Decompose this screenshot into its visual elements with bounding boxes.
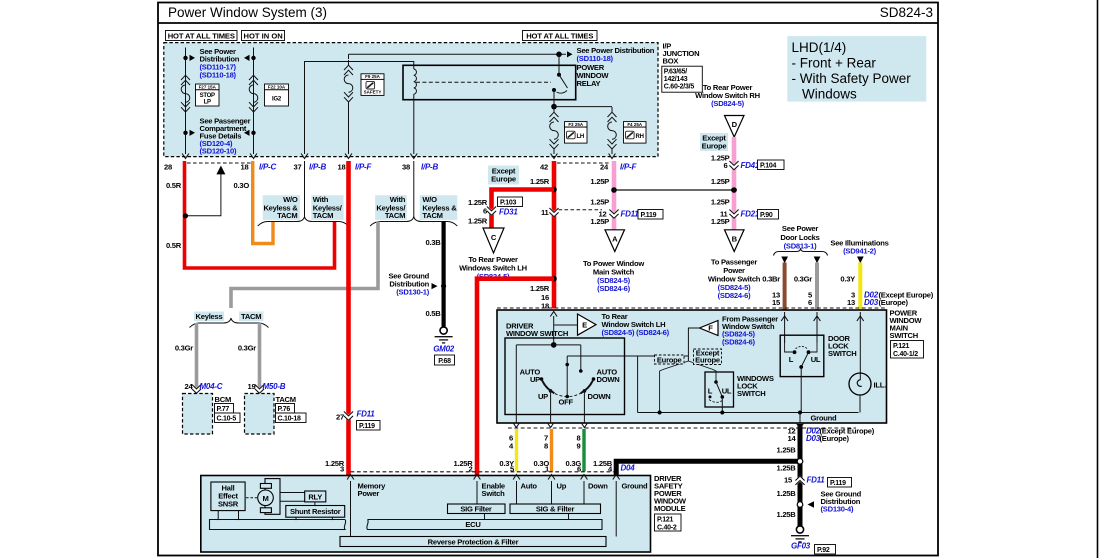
svg-text:P.63/65/: P.63/65/	[664, 69, 687, 76]
svg-text:TACM: TACM	[276, 395, 296, 404]
svg-text:TACM: TACM	[422, 211, 442, 220]
svg-text:(SD110-18): (SD110-18)	[200, 71, 237, 80]
svg-text:Ground: Ground	[811, 414, 838, 423]
svg-text:18: 18	[338, 163, 346, 172]
svg-text:UL: UL	[722, 387, 732, 396]
svg-text:M04-C: M04-C	[200, 382, 223, 391]
svg-text:0.3Gr: 0.3Gr	[175, 344, 193, 353]
svg-text:28: 28	[164, 163, 172, 172]
svg-text:24: 24	[600, 163, 609, 172]
svg-text:F9 25A: F9 25A	[365, 74, 381, 79]
svg-text:Keyless: Keyless	[196, 312, 223, 321]
svg-text:(SD824-6): (SD824-6)	[597, 284, 630, 293]
svg-text:P.68: P.68	[438, 358, 451, 365]
svg-text:I/P-C: I/P-C	[259, 163, 276, 172]
svg-text:Up: Up	[557, 482, 567, 491]
svg-text:WINDOW SWITCH: WINDOW SWITCH	[506, 329, 568, 338]
svg-text:E: E	[582, 321, 587, 330]
svg-text:DOWN: DOWN	[588, 392, 611, 401]
svg-text:(SD824-5) (SD824-6): (SD824-5) (SD824-6)	[602, 328, 670, 337]
svg-text:(SD120-10): (SD120-10)	[200, 147, 237, 156]
svg-text:0.3Y: 0.3Y	[840, 275, 855, 284]
svg-text:UL: UL	[811, 355, 821, 364]
svg-text:TACM: TACM	[277, 211, 297, 220]
svg-text:SIG Filter: SIG Filter	[460, 505, 492, 514]
svg-text:D: D	[732, 120, 738, 129]
svg-text:I/P-B: I/P-B	[309, 163, 326, 172]
svg-text:P.103: P.103	[500, 200, 516, 207]
svg-text:UP: UP	[530, 375, 540, 384]
svg-text:See Power: See Power	[782, 224, 818, 233]
svg-text:GF03: GF03	[791, 542, 811, 551]
svg-text:SD824-3: SD824-3	[880, 5, 933, 20]
svg-text:Reverse Protection & Filter: Reverse Protection & Filter	[428, 538, 519, 547]
svg-text:DOWN: DOWN	[597, 375, 620, 384]
svg-text:6: 6	[483, 207, 487, 216]
svg-text:SWITCH: SWITCH	[890, 331, 918, 340]
svg-text:P.121: P.121	[893, 343, 909, 350]
svg-text:F4 25A: F4 25A	[627, 122, 643, 127]
svg-text:P.92: P.92	[817, 547, 830, 554]
svg-text:LH: LH	[577, 134, 585, 140]
svg-text:RH: RH	[636, 134, 644, 140]
svg-text:0.5R: 0.5R	[166, 241, 182, 250]
svg-text:FD11: FD11	[357, 410, 376, 419]
svg-text:0.3Gr: 0.3Gr	[794, 275, 812, 284]
svg-text:C.60-2/3/5: C.60-2/3/5	[664, 84, 695, 91]
svg-text:Windows: Windows	[802, 87, 857, 102]
svg-text:1.25P: 1.25P	[590, 217, 609, 226]
svg-text:TACM: TACM	[241, 312, 261, 321]
svg-text:FD41: FD41	[741, 161, 760, 170]
svg-text:Power Window System (3): Power Window System (3)	[168, 5, 327, 20]
svg-text:BCM: BCM	[215, 395, 232, 404]
svg-text:(SD130-4): (SD130-4)	[821, 505, 854, 514]
svg-text:24: 24	[185, 382, 194, 391]
svg-text:Switch: Switch	[482, 489, 506, 498]
svg-text:SWITCH: SWITCH	[737, 389, 765, 398]
svg-text:1.25B: 1.25B	[776, 463, 796, 472]
svg-text:(SD824-5): (SD824-5)	[711, 99, 744, 108]
svg-text:9: 9	[577, 442, 581, 451]
svg-text:FD21: FD21	[741, 210, 760, 219]
svg-text:(SD824-6): (SD824-6)	[722, 338, 755, 347]
svg-text:SWITCH: SWITCH	[828, 349, 856, 358]
svg-text:6: 6	[808, 298, 812, 307]
svg-text:STOP: STOP	[200, 93, 215, 99]
svg-text:RLY: RLY	[308, 493, 322, 502]
svg-text:- Front + Rear: - Front + Rear	[792, 56, 877, 71]
svg-text:1.25P: 1.25P	[711, 177, 730, 186]
svg-text:1.25B: 1.25B	[776, 510, 796, 519]
svg-text:1.25P: 1.25P	[590, 198, 609, 207]
svg-text:L: L	[789, 355, 794, 364]
svg-text:D04: D04	[621, 463, 636, 472]
svg-text:18: 18	[541, 302, 549, 311]
svg-text:- With Safety Power: - With Safety Power	[792, 71, 912, 86]
svg-text:0.3B: 0.3B	[425, 238, 441, 247]
svg-text:C.40-2: C.40-2	[657, 525, 677, 532]
svg-text:27: 27	[336, 413, 344, 422]
svg-text:TACM: TACM	[313, 211, 333, 220]
svg-text:I/P-B: I/P-B	[421, 163, 438, 172]
svg-text:LP: LP	[204, 100, 211, 106]
svg-text:BOX: BOX	[663, 57, 679, 66]
svg-text:IG2: IG2	[272, 97, 282, 103]
svg-text:14: 14	[788, 434, 797, 443]
svg-text:P.104: P.104	[760, 163, 776, 170]
svg-text:LHD(1/4): LHD(1/4)	[792, 40, 847, 55]
svg-text:L: L	[708, 387, 713, 396]
svg-text:ECU: ECU	[465, 520, 481, 529]
svg-text:TACM: TACM	[385, 211, 405, 220]
svg-text:RELAY: RELAY	[577, 79, 601, 88]
svg-text:Auto: Auto	[521, 482, 538, 491]
svg-text:P.119: P.119	[641, 212, 657, 219]
svg-text:P.119: P.119	[830, 480, 846, 487]
svg-text:Shunt Resistor: Shunt Resistor	[290, 507, 341, 516]
svg-text:B: B	[732, 235, 738, 244]
svg-text:Europe: Europe	[695, 356, 720, 365]
svg-text:1.25R: 1.25R	[468, 217, 488, 226]
svg-text:3: 3	[340, 464, 344, 473]
svg-text:F3 25A: F3 25A	[568, 122, 584, 127]
svg-text:SNSR: SNSR	[218, 499, 239, 508]
svg-text:(SD941-2): (SD941-2)	[843, 247, 876, 256]
svg-text:HOT AT ALL TIMES: HOT AT ALL TIMES	[526, 31, 593, 40]
svg-text:P.90: P.90	[760, 212, 773, 219]
svg-text:I/P-F: I/P-F	[620, 163, 637, 172]
svg-text:C.10-5: C.10-5	[217, 416, 237, 423]
svg-text:HOT AT ALL TIMES: HOT AT ALL TIMES	[168, 31, 235, 40]
svg-text:HOT IN ON: HOT IN ON	[244, 31, 283, 40]
svg-text:Power: Power	[358, 489, 380, 498]
svg-text:Ground: Ground	[622, 482, 649, 491]
svg-text:(Europe): (Europe)	[879, 298, 909, 307]
svg-text:Europe: Europe	[657, 356, 682, 365]
svg-text:1.25P: 1.25P	[711, 217, 730, 226]
svg-text:SIG & Filter: SIG & Filter	[536, 505, 575, 514]
svg-text:142/143: 142/143	[664, 76, 688, 83]
svg-text:P.77: P.77	[217, 406, 230, 413]
svg-text:C.10-18: C.10-18	[278, 416, 302, 423]
svg-text:(SD824-6): (SD824-6)	[718, 291, 751, 300]
svg-text:UP: UP	[538, 392, 548, 401]
svg-text:19: 19	[248, 382, 256, 391]
svg-text:Down: Down	[588, 482, 608, 491]
svg-text:13: 13	[847, 298, 855, 307]
svg-text:P.119: P.119	[359, 423, 375, 430]
svg-text:F: F	[708, 324, 713, 333]
svg-text:38: 38	[402, 163, 410, 172]
svg-text:1.25R: 1.25R	[530, 177, 550, 186]
svg-text:1.25B: 1.25B	[776, 446, 796, 455]
svg-text:1.25P: 1.25P	[590, 177, 609, 186]
svg-text:15: 15	[784, 476, 793, 485]
svg-text:OFF: OFF	[559, 398, 574, 407]
svg-text:D03: D03	[864, 298, 879, 307]
svg-text:0.5R: 0.5R	[166, 181, 182, 190]
svg-text:18: 18	[241, 163, 249, 172]
svg-text:0.3Br: 0.3Br	[762, 275, 780, 284]
svg-text:Europe: Europe	[702, 142, 727, 151]
svg-text:A: A	[612, 235, 618, 244]
svg-text:P.121: P.121	[657, 517, 673, 524]
svg-text:I/P-F: I/P-F	[355, 163, 372, 172]
svg-text:C.40-1/2: C.40-1/2	[893, 351, 918, 358]
svg-text:1.25P: 1.25P	[711, 198, 730, 207]
svg-text:(SD110-18): (SD110-18)	[577, 54, 614, 63]
svg-text:MODULE: MODULE	[654, 504, 686, 513]
svg-text:0.5B: 0.5B	[425, 309, 441, 318]
svg-text:M50-B: M50-B	[263, 382, 286, 391]
svg-text:FD11: FD11	[807, 476, 826, 485]
svg-text:8: 8	[544, 442, 548, 451]
svg-text:SAFETY: SAFETY	[364, 90, 382, 95]
svg-text:C: C	[491, 233, 497, 242]
svg-text:15: 15	[772, 298, 781, 307]
svg-text:(SD130-1): (SD130-1)	[396, 288, 429, 297]
svg-text:GM02: GM02	[433, 345, 455, 354]
svg-text:1.25R: 1.25R	[530, 284, 550, 293]
svg-text:FD11: FD11	[621, 210, 640, 219]
svg-text:(Europe): (Europe)	[820, 434, 850, 443]
svg-text:FD31: FD31	[499, 208, 518, 217]
svg-text:6: 6	[724, 161, 728, 170]
svg-text:F22 10A: F22 10A	[268, 85, 286, 90]
svg-text:Europe: Europe	[491, 175, 516, 184]
svg-text:ILL.: ILL.	[874, 381, 887, 390]
svg-text:0.3O: 0.3O	[234, 181, 250, 190]
svg-text:F27 15A: F27 15A	[199, 85, 217, 90]
svg-text:0.3Gr: 0.3Gr	[238, 344, 256, 353]
svg-text:42: 42	[540, 163, 548, 172]
svg-text:1.25B: 1.25B	[776, 489, 796, 498]
svg-text:11: 11	[541, 208, 550, 217]
svg-text:P.76: P.76	[278, 406, 291, 413]
svg-text:M: M	[262, 494, 268, 503]
svg-text:37: 37	[294, 163, 302, 172]
